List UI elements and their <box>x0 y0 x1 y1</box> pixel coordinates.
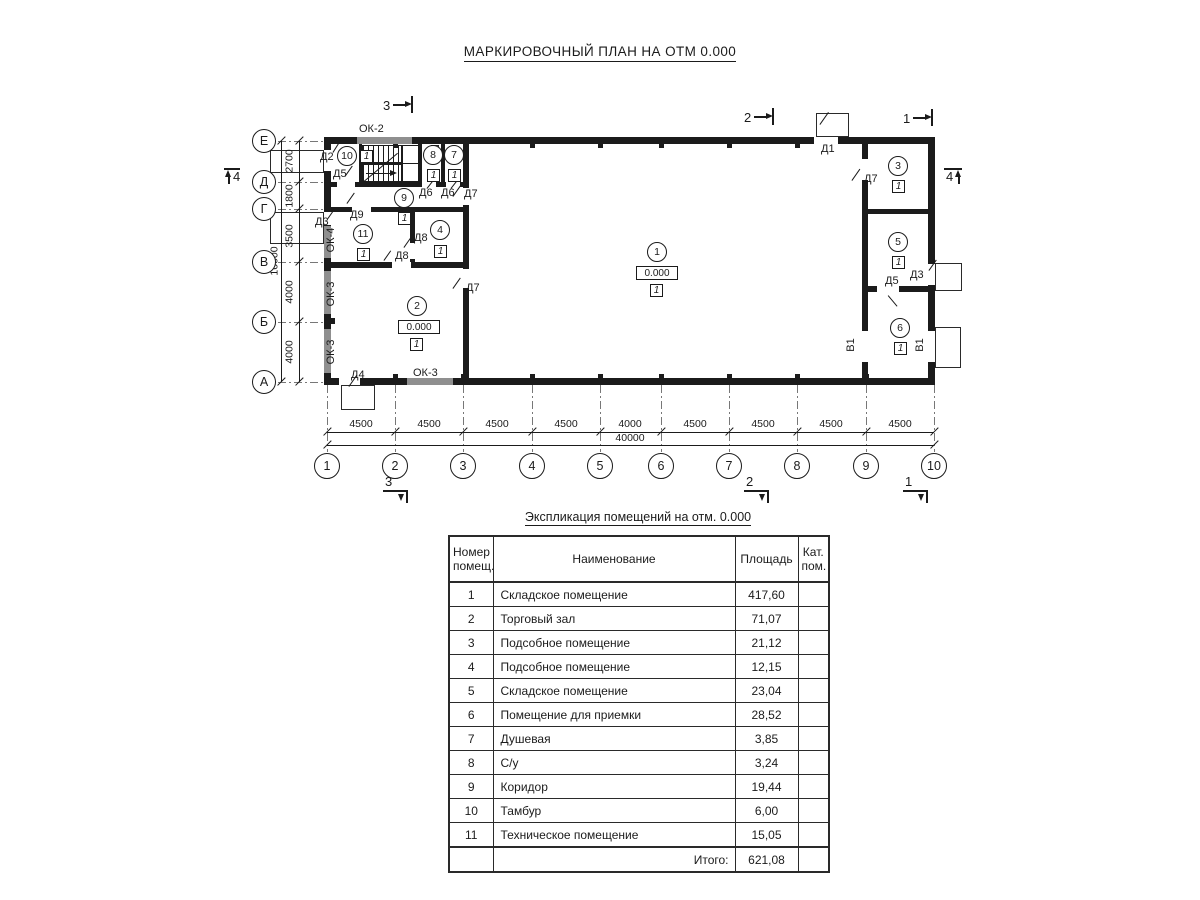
axis-bubble-row: Г <box>252 197 276 221</box>
door-label: Д7 <box>466 282 480 294</box>
room-category-cell <box>798 582 829 607</box>
drawing-sheet: МАРКИРОВОЧНЫЙ ПЛАН НА ОТМ 0.000 Д2Д5Д9Д3… <box>0 0 1200 900</box>
table-row: 6Помещение для приемки28,52 <box>449 703 829 727</box>
category-badge: 1 <box>427 169 440 182</box>
section-mark: 3 <box>383 475 417 505</box>
room-category-cell <box>798 775 829 799</box>
section-mark-line <box>926 490 928 503</box>
room-name-cell: Техническое помещение <box>493 823 735 848</box>
total-value: 621,08 <box>735 847 798 872</box>
door-label: Д1 <box>821 143 835 155</box>
column-header: Наименование <box>493 536 735 582</box>
axis-bubble-col: 7 <box>716 453 742 479</box>
floor-plan: Д2Д5Д9Д3Д4Д1Д7Д7Д7Д8Д8Д6Д6Д5Д3ОК-2ОК-3ОК… <box>0 0 1200 530</box>
empty-cell <box>798 847 829 872</box>
room-name-cell: Тамбур <box>493 799 735 823</box>
room-number-badge: 7 <box>444 145 464 165</box>
table-row: 10Тамбур6,00 <box>449 799 829 823</box>
room-area-cell: 23,04 <box>735 679 798 703</box>
door-opening <box>410 243 415 259</box>
axis-bubble-col: 8 <box>784 453 810 479</box>
axis-line <box>866 385 867 452</box>
dimension-label: 4500 <box>407 419 451 430</box>
room-area-cell: 3,24 <box>735 751 798 775</box>
table-row: 7Душевая3,85 <box>449 727 829 751</box>
axis-line <box>600 385 601 452</box>
door-label: Д3 <box>315 216 329 228</box>
window-label: В1 <box>845 338 857 351</box>
table-row: 9Коридор19,44 <box>449 775 829 799</box>
dimension-label: 4000 <box>285 340 296 363</box>
window-label: ОК-2 <box>359 123 384 135</box>
window-label: ОК-3 <box>325 340 337 365</box>
room-number-badge: 11 <box>353 224 373 244</box>
window-label: ОК-4 <box>325 228 337 253</box>
door-label: Д9 <box>350 209 364 221</box>
table-row: 4Подсобное помещение12,15 <box>449 655 829 679</box>
dimension-label: 4500 <box>544 419 588 430</box>
section-number: 1 <box>903 112 910 125</box>
room-category-cell <box>798 703 829 727</box>
room-number-cell: 11 <box>449 823 493 848</box>
pilaster <box>393 374 398 378</box>
door-leaf-icon <box>452 278 461 289</box>
section-number: 3 <box>383 99 390 112</box>
room-name-cell: Складское помещение <box>493 582 735 607</box>
room-name-cell: Душевая <box>493 727 735 751</box>
axis-bubble-col: 5 <box>587 453 613 479</box>
total-label: Итого: <box>493 847 735 872</box>
pilaster <box>598 144 603 148</box>
door-label: Д5 <box>333 168 347 180</box>
table-row: 5Складское помещение23,04 <box>449 679 829 703</box>
pilaster <box>530 374 535 378</box>
category-badge: 1 <box>360 150 373 163</box>
dimension-label: 4500 <box>673 419 717 430</box>
table-header-row: Номер помещ.НаименованиеПлощадьКат. пом. <box>449 536 829 582</box>
column-header: Площадь <box>735 536 798 582</box>
category-badge: 1 <box>398 212 411 225</box>
door-label: Д5 <box>885 275 899 287</box>
axis-line <box>532 385 533 452</box>
room-area-cell: 21,12 <box>735 631 798 655</box>
section-number: 2 <box>744 111 751 124</box>
room-category-cell <box>798 751 829 775</box>
pilaster <box>530 144 535 148</box>
pilaster <box>864 374 869 378</box>
section-arrow-icon <box>759 494 765 501</box>
room-number-badge: 10 <box>337 146 357 166</box>
section-mark: 2 <box>744 108 778 138</box>
pilaster <box>795 144 800 148</box>
room-number-badge: 5 <box>888 232 908 252</box>
axis-bubble-row: В <box>252 250 276 274</box>
category-badge: 1 <box>410 338 423 351</box>
window-label: ОК-3 <box>413 367 438 379</box>
window-label: ОК-3 <box>325 282 337 307</box>
category-badge: 1 <box>650 284 663 297</box>
porch-outline <box>270 150 324 173</box>
table-title: Экспликация помещений на отм. 0.000 <box>448 510 828 526</box>
axis-bubble-col: 1 <box>314 453 340 479</box>
dimension-label: 40000 <box>605 433 655 444</box>
room-number-cell: 9 <box>449 775 493 799</box>
room-category-cell <box>798 799 829 823</box>
axis-line <box>278 182 324 183</box>
door-opening <box>392 262 411 268</box>
section-arrow-icon <box>398 494 404 501</box>
section-mark: 1 <box>903 109 937 139</box>
door-label: Д7 <box>864 173 878 185</box>
room-area-cell: 19,44 <box>735 775 798 799</box>
dimension-label: 4000 <box>608 419 652 430</box>
door-opening <box>337 182 355 187</box>
wall <box>324 207 469 212</box>
dimension-label: 4500 <box>878 419 922 430</box>
stairs-arrow-line <box>366 173 392 174</box>
room-name-cell: Коридор <box>493 775 735 799</box>
section-mark-line <box>772 108 774 125</box>
dimension-label: 2700 <box>285 149 296 172</box>
section-mark-line <box>958 176 960 184</box>
section-arrow-icon <box>918 494 924 501</box>
axis-bubble-col: 3 <box>450 453 476 479</box>
room-area-cell: 3,85 <box>735 727 798 751</box>
column-header: Номер помещ. <box>449 536 493 582</box>
section-number: 2 <box>746 475 753 488</box>
room-category-cell <box>798 679 829 703</box>
elevation-mark: 0.000 <box>398 320 440 334</box>
axis-line <box>729 385 730 452</box>
dimension-label: 3500 <box>285 224 296 247</box>
axis-bubble-col: 10 <box>921 453 947 479</box>
room-number-cell: 1 <box>449 582 493 607</box>
axis-line <box>278 209 324 210</box>
pilaster <box>727 374 732 378</box>
table-row: 1Складское помещение417,60 <box>449 582 829 607</box>
section-mark-line <box>767 490 769 503</box>
axis-bubble-row: Е <box>252 129 276 153</box>
explication-table: Номер помещ.НаименованиеПлощадьКат. пом.… <box>448 535 830 873</box>
room-number-badge: 9 <box>394 188 414 208</box>
room-category-cell <box>798 631 829 655</box>
door-opening <box>928 331 935 362</box>
door-leaf-icon <box>383 250 391 261</box>
porch-outline <box>935 327 961 368</box>
axis-line <box>278 322 324 323</box>
table-title-text: Экспликация помещений на отм. 0.000 <box>525 510 751 526</box>
section-number: 4 <box>233 170 240 183</box>
room-name-cell: Помещение для приемки <box>493 703 735 727</box>
dimension-line <box>281 141 282 382</box>
axis-line <box>395 385 396 452</box>
room-number-badge: 6 <box>890 318 910 338</box>
axis-bubble-col: 9 <box>853 453 879 479</box>
room-category-cell <box>798 823 829 848</box>
porch-outline <box>816 113 849 137</box>
axis-line <box>278 382 324 383</box>
section-mark: 4 <box>944 166 978 196</box>
room-number-badge: 1 <box>647 242 667 262</box>
door-label: Д4 <box>351 369 365 381</box>
section-mark: 3 <box>383 96 417 126</box>
empty-cell <box>449 847 493 872</box>
room-name-cell: С/у <box>493 751 735 775</box>
axis-line <box>278 141 324 142</box>
axis-line <box>661 385 662 452</box>
door-opening <box>862 331 868 362</box>
table-row: 8С/у3,24 <box>449 751 829 775</box>
section-number: 4 <box>946 170 953 183</box>
stairs-divider <box>362 163 420 164</box>
pilaster <box>659 374 664 378</box>
door-label: Д8 <box>414 232 428 244</box>
room-category-cell <box>798 727 829 751</box>
room-number-badge: 3 <box>888 156 908 176</box>
room-area-cell: 417,60 <box>735 582 798 607</box>
room-name-cell: Торговый зал <box>493 607 735 631</box>
room-number-cell: 2 <box>449 607 493 631</box>
dimension-tick <box>930 441 939 450</box>
category-badge: 1 <box>892 180 905 193</box>
wall <box>463 137 469 385</box>
axis-bubble-row: Б <box>252 310 276 334</box>
door-label: Д6 <box>419 187 433 199</box>
table-row: 2Торговый зал71,07 <box>449 607 829 631</box>
section-mark-line <box>406 490 408 503</box>
table-row: 11Техническое помещение15,05 <box>449 823 829 848</box>
section-mark: 2 <box>744 475 778 505</box>
pilaster <box>331 318 335 324</box>
pilaster <box>598 374 603 378</box>
dimension-tick <box>930 428 939 437</box>
door-label: Д6 <box>441 187 455 199</box>
room-number-cell: 5 <box>449 679 493 703</box>
room-number-badge: 4 <box>430 220 450 240</box>
room-number-cell: 3 <box>449 631 493 655</box>
dimension-label: 4500 <box>809 419 853 430</box>
porch-outline <box>935 263 962 291</box>
room-area-cell: 12,15 <box>735 655 798 679</box>
category-badge: 1 <box>448 169 461 182</box>
wall <box>862 209 935 214</box>
door-leaf-icon <box>888 295 898 307</box>
category-badge: 1 <box>894 342 907 355</box>
dimension-label: 4500 <box>741 419 785 430</box>
door-leaf-icon <box>851 169 860 181</box>
category-badge: 1 <box>357 248 370 261</box>
dimension-label: 1800 <box>285 184 296 207</box>
pilaster <box>461 374 466 378</box>
dimension-label: 4500 <box>475 419 519 430</box>
window-opening <box>357 137 412 144</box>
door-label: Д8 <box>395 250 409 262</box>
room-area-cell: 15,05 <box>735 823 798 848</box>
room-number-badge: 2 <box>407 296 427 316</box>
dimension-label: 4500 <box>339 419 383 430</box>
room-area-cell: 6,00 <box>735 799 798 823</box>
room-name-cell: Подсобное помещение <box>493 655 735 679</box>
dimension-line <box>327 445 934 446</box>
room-number-cell: 4 <box>449 655 493 679</box>
door-label: Д3 <box>910 269 924 281</box>
pilaster <box>659 144 664 148</box>
dimension-label: 4000 <box>285 280 296 303</box>
section-mark-line <box>744 490 769 492</box>
room-number-cell: 6 <box>449 703 493 727</box>
total-row: Итого:621,08 <box>449 847 829 872</box>
axis-line <box>463 385 464 452</box>
axis-bubble-row: Д <box>252 170 276 194</box>
axis-line <box>278 262 324 263</box>
room-number-cell: 10 <box>449 799 493 823</box>
room-number-badge: 8 <box>423 145 443 165</box>
window-label: В1 <box>914 338 926 351</box>
section-mark-line <box>383 490 408 492</box>
column-header: Кат. пом. <box>798 536 829 582</box>
window-opening <box>407 378 453 385</box>
axis-bubble-col: 2 <box>382 453 408 479</box>
axis-bubble-col: 6 <box>648 453 674 479</box>
room-number-cell: 7 <box>449 727 493 751</box>
wall <box>441 143 445 182</box>
section-mark: 1 <box>903 475 937 505</box>
room-name-cell: Складское помещение <box>493 679 735 703</box>
pilaster <box>795 374 800 378</box>
axis-bubble-row: А <box>252 370 276 394</box>
section-mark-line <box>903 490 928 492</box>
room-area-cell: 71,07 <box>735 607 798 631</box>
room-number-cell: 8 <box>449 751 493 775</box>
room-category-cell <box>798 607 829 631</box>
section-mark-line <box>411 96 413 113</box>
category-badge: 1 <box>434 245 447 258</box>
section-number: 1 <box>905 475 912 488</box>
section-mark-line <box>931 109 933 126</box>
door-leaf-icon <box>346 193 355 204</box>
stairs-arrow-icon <box>390 170 397 176</box>
room-category-cell <box>798 655 829 679</box>
elevation-mark: 0.000 <box>636 266 678 280</box>
door-label: Д7 <box>464 188 478 200</box>
axis-line <box>797 385 798 452</box>
wall <box>324 137 935 144</box>
room-name-cell: Подсобное помещение <box>493 631 735 655</box>
door-label: Д2 <box>320 151 334 163</box>
pilaster <box>727 144 732 148</box>
category-badge: 1 <box>892 256 905 269</box>
axis-bubble-col: 4 <box>519 453 545 479</box>
room-area-cell: 28,52 <box>735 703 798 727</box>
porch-outline <box>341 385 375 410</box>
section-mark-line <box>228 176 230 184</box>
table-row: 3Подсобное помещение21,12 <box>449 631 829 655</box>
